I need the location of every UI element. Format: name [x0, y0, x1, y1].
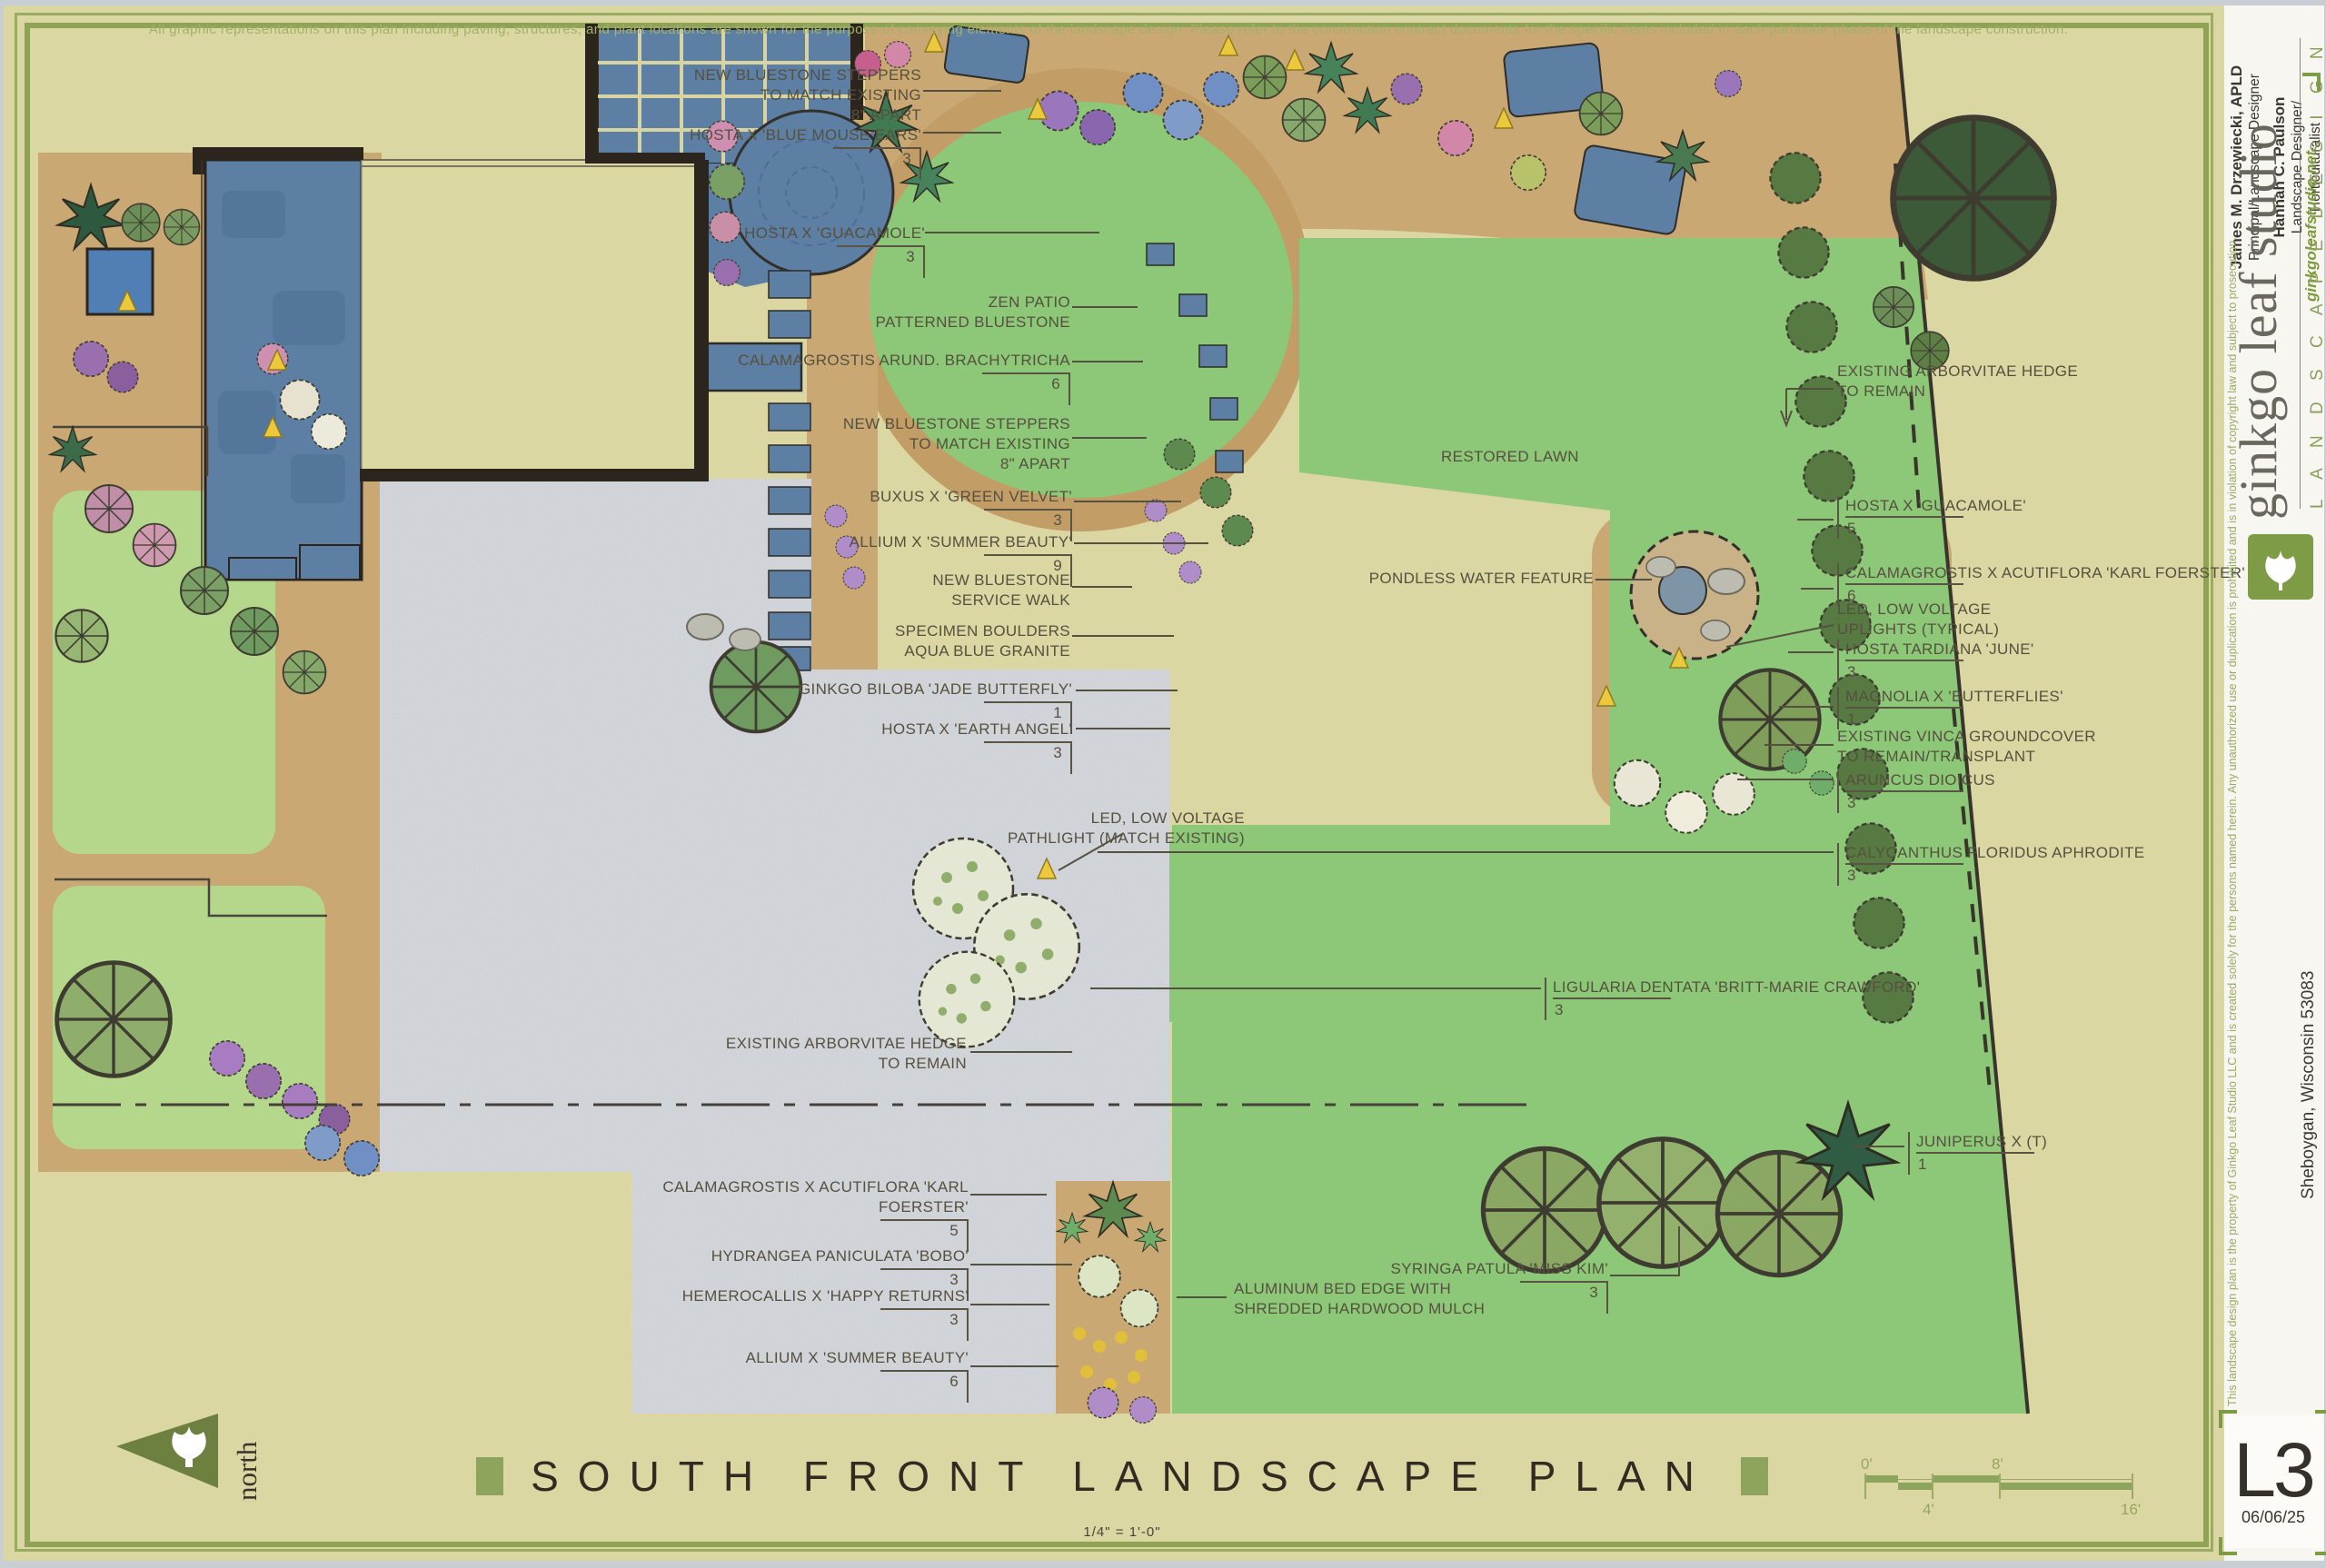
plan-label: CALAMAGROSTIS ARUND. BRACHYTRICHA6	[680, 351, 1070, 405]
plan-label: HOSTA X 'GUACAMOLE'5	[1837, 496, 2272, 539]
scale-bar: 0' 8' 4' 16'	[1864, 1459, 2137, 1526]
title-square-right	[1741, 1457, 1768, 1495]
plan-label: EXISTING ARBORVITAE HEDGE TO REMAIN	[576, 1034, 967, 1074]
crop-mark	[2219, 1410, 2237, 1428]
plan-label: JUNIPERUS X (T)1	[1908, 1132, 2098, 1175]
copyright-text: This landscape design plan is the proper…	[2226, 237, 2239, 1406]
plan-label: NEW BLUESTONE STEPPERS TO MATCH EXISTING…	[680, 414, 1070, 474]
plan-label: NEW BLUESTONE STEPPERS TO MATCH EXISTING…	[531, 65, 921, 125]
sheet-number: L3	[2233, 1436, 2312, 1505]
plan-label: HOSTA TARDIANA 'JUNE'3	[1837, 640, 2272, 682]
plan-label: RESTORED LAWN	[1441, 447, 1741, 467]
scale-16: 16'	[2121, 1501, 2141, 1519]
plan-label: LED, LOW VOLTAGE PATHLIGHT (MATCH EXISTI…	[854, 809, 1245, 849]
north-arrow	[109, 1406, 245, 1497]
plan-label: HOSTA X 'GUACAMOLE'3	[534, 223, 925, 278]
plan-label: EXISTING VINCA GROUNDCOVER TO REMAIN/TRA…	[1837, 727, 2164, 767]
sheet-title-row: SOUTH FRONT LANDSCAPE PLAN	[300, 1452, 1944, 1501]
plan-label: ALLIUM X 'SUMMER BEAUTY'6	[578, 1348, 969, 1403]
scale-8: 8'	[1992, 1455, 2003, 1474]
landscape-plan-sheet: All graphic representations on this plan…	[0, 0, 2326, 1568]
crop-mark	[2315, 1410, 2326, 1428]
plan-label: CALYCANTHUS FLORIDUS APHRODITE3	[1837, 843, 2272, 886]
plan-label: CALAMAGROSTIS X ACUTIFLORA 'KARL FOERSTE…	[578, 1177, 969, 1252]
plan-label: MAGNOLIA X 'BUTTERFLIES'1	[1837, 687, 2272, 729]
plan-label: PONDLESS WATER FEATURE	[1203, 569, 1594, 589]
sheet-number-box: L3 06/06/25	[2224, 1415, 2322, 1548]
scale-0: 0'	[1861, 1455, 1873, 1474]
plan-label: SPECIMEN BOULDERS AQUA BLUE GRANITE	[680, 621, 1070, 661]
project-address: Sheboygan, Wisconsin 53083	[2299, 971, 2319, 1199]
plan-label: NEW BLUESTONE SERVICE WALK	[680, 571, 1070, 610]
studio-tagline: L A N D S C A P E D E S I G N	[2300, 38, 2326, 509]
plan-label: HOSTA X 'BLUE MOUSE EARS'3	[531, 125, 921, 180]
plan-label: EXISTING ARBORVITAE HEDGE TO REMAIN	[1837, 362, 2137, 402]
plan-label: SYRINGA PATULA 'MISS KIM'3	[1218, 1259, 1608, 1314]
crop-mark	[2302, 73, 2321, 91]
north-label: north	[231, 1442, 263, 1501]
plan-label: HOSTA X 'EARTH ANGEL'3	[681, 719, 1072, 774]
plan-label: HEMEROCALLIS X 'HAPPY RETURNS'3	[578, 1286, 969, 1341]
plan-label: ZEN PATIO PATTERNED BLUESTONE	[680, 293, 1070, 332]
ginkgo-leaf-logo-icon	[2248, 534, 2313, 600]
scale-note: 1/4" = 1'-0"	[300, 1524, 1944, 1540]
crop-mark	[2315, 1537, 2326, 1555]
title-square-left	[476, 1457, 503, 1495]
scale-4: 4'	[1923, 1501, 1934, 1519]
plan-label: LIGULARIA DENTATA 'BRITT-MARIE CRAWFORD'…	[1545, 978, 1980, 1020]
sheet-title: SOUTH FRONT LANDSCAPE PLAN	[531, 1452, 1714, 1501]
water-feature	[1631, 531, 1758, 659]
crop-mark	[2219, 1537, 2237, 1555]
disclaimer-text: All graphic representations on this plan…	[136, 22, 2081, 37]
plan-label: ARUNCUS DIOICUS3	[1837, 770, 2272, 813]
sheet-date: 06/06/25	[2242, 1508, 2305, 1527]
plan-label: LED, LOW VOLTAGE UPLIGHTS (TYPICAL)	[1837, 600, 2137, 640]
